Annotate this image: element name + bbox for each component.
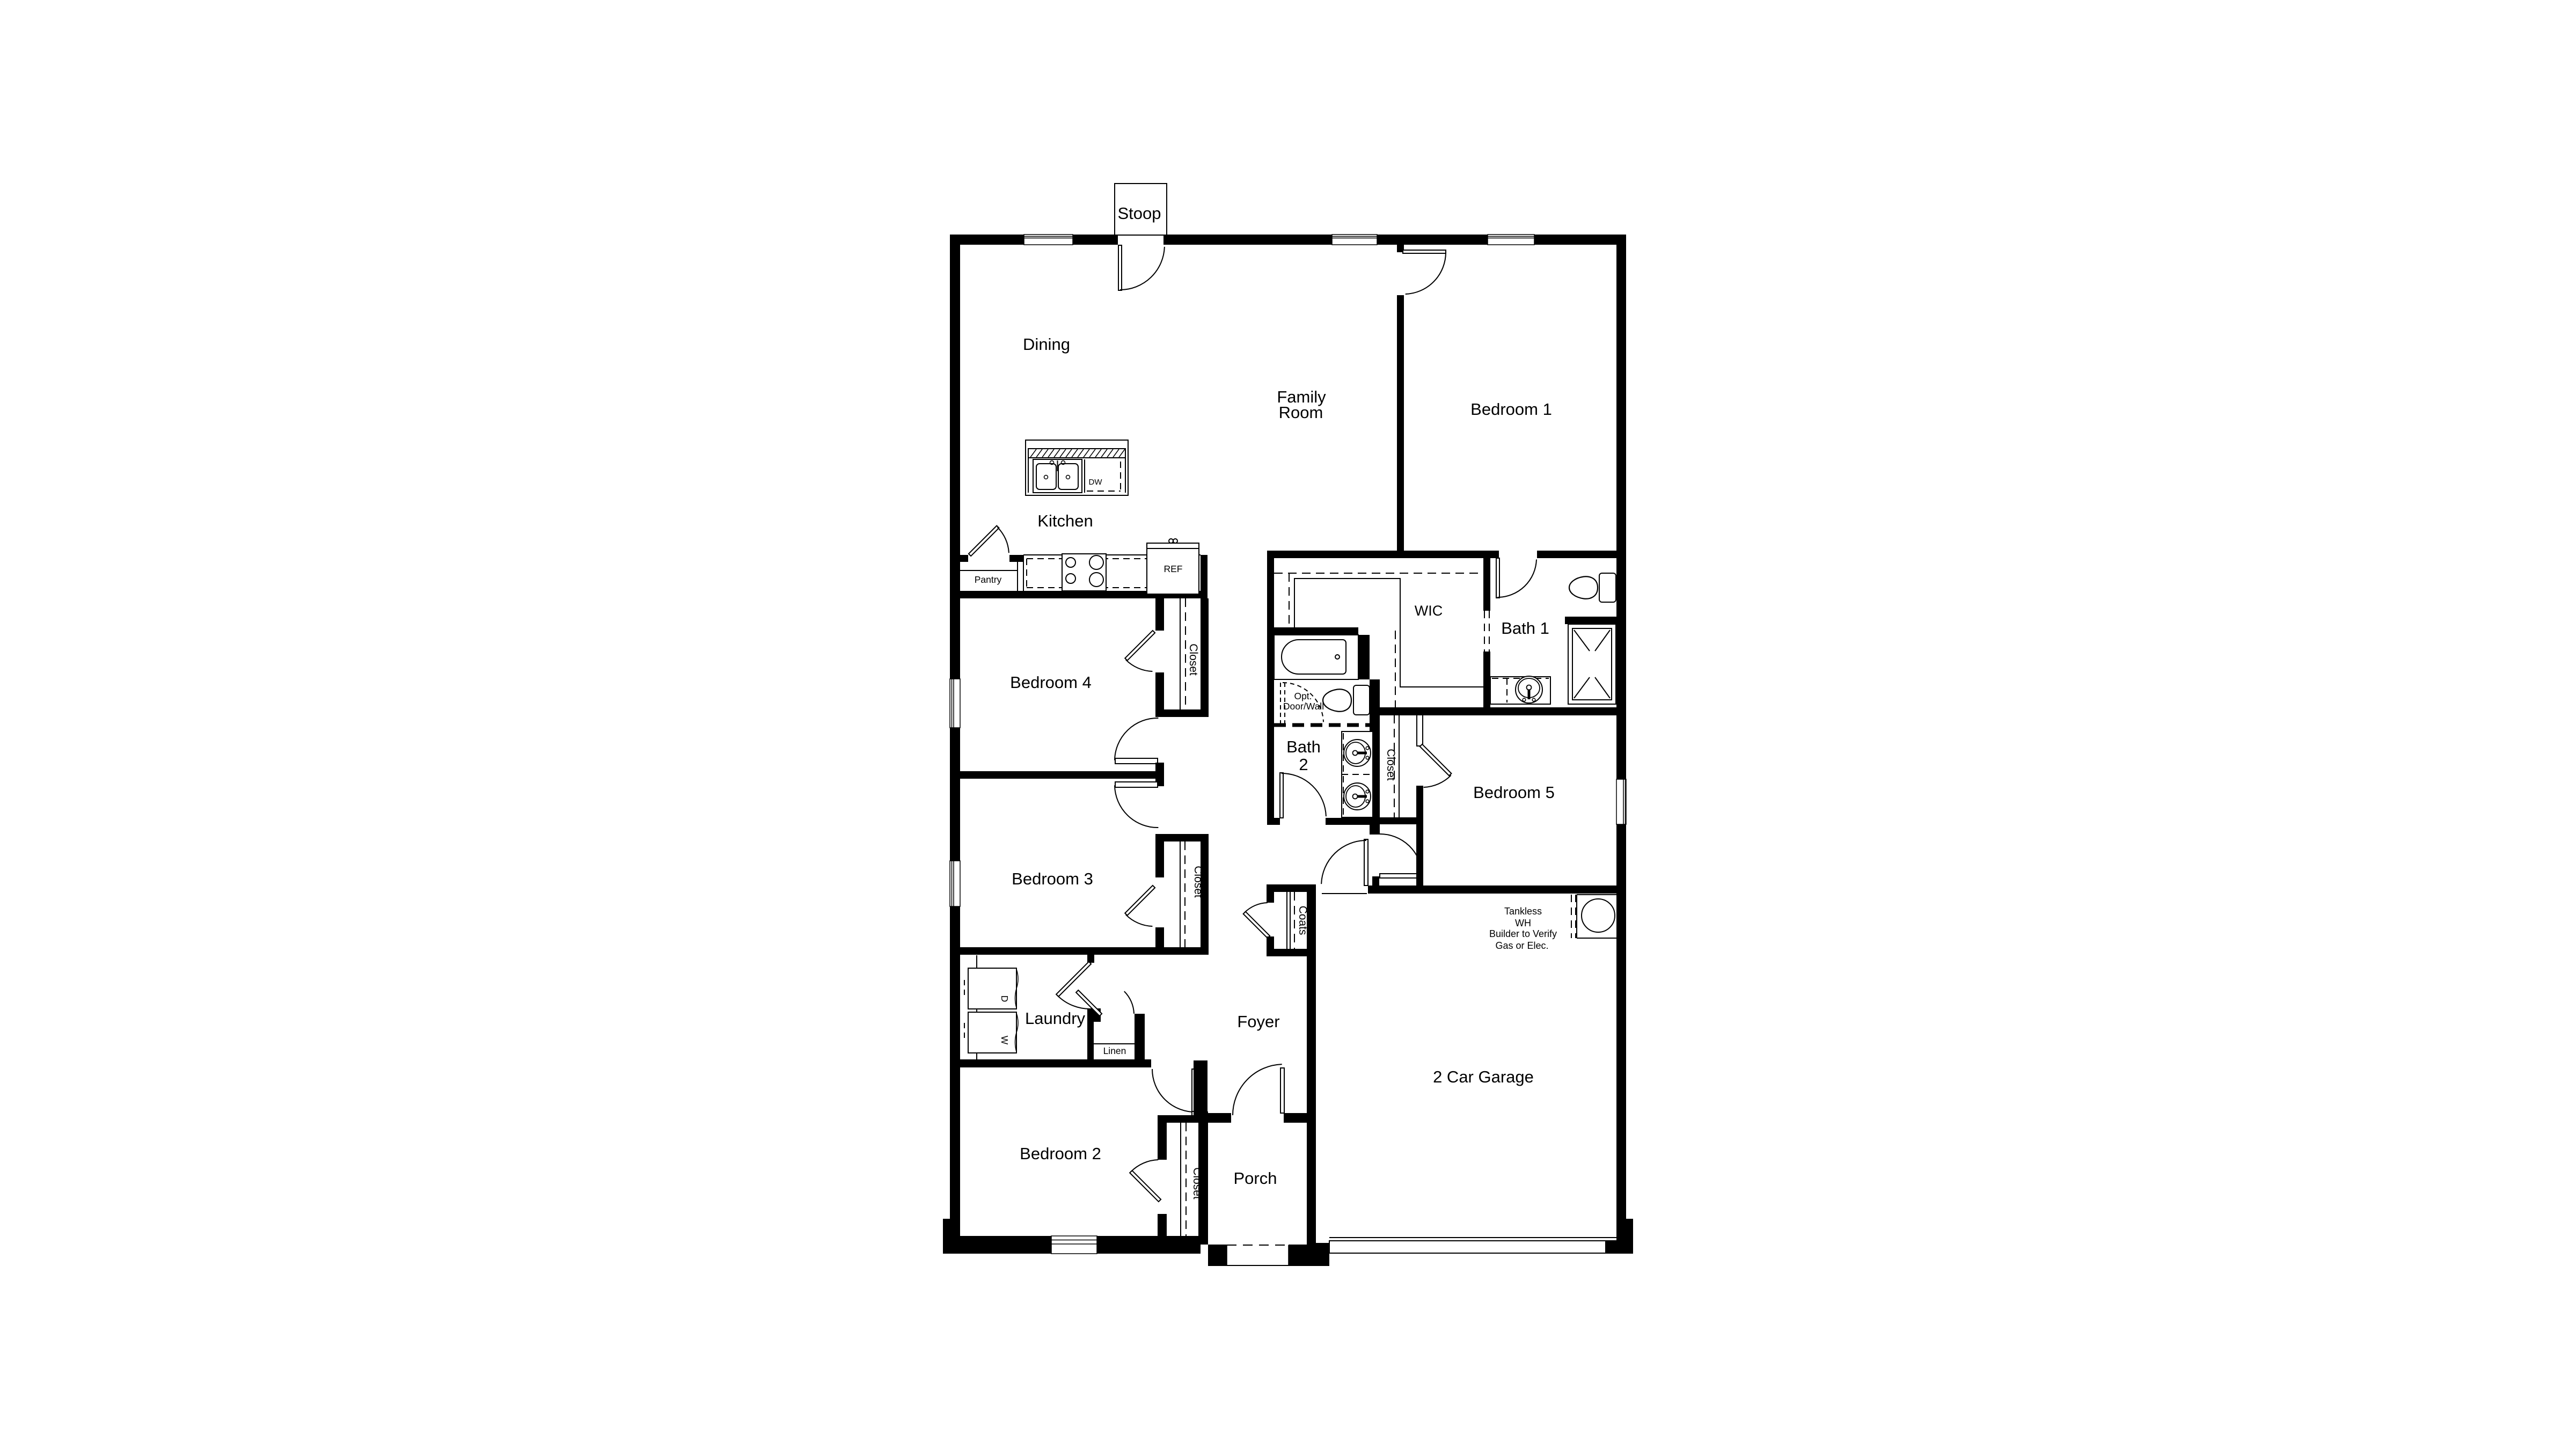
svg-text:Closet: Closet bbox=[1385, 749, 1397, 781]
svg-text:Door/Wall: Door/Wall bbox=[1283, 701, 1324, 712]
svg-text:W: W bbox=[999, 1036, 1010, 1045]
svg-text:2: 2 bbox=[1299, 755, 1308, 774]
svg-text:Tankless: Tankless bbox=[1504, 906, 1542, 917]
svg-text:Bedroom 1: Bedroom 1 bbox=[1470, 400, 1552, 419]
svg-text:Bath: Bath bbox=[1286, 737, 1321, 756]
svg-text:Coats: Coats bbox=[1297, 906, 1309, 935]
svg-text:Stoop: Stoop bbox=[1117, 204, 1161, 223]
svg-text:REF: REF bbox=[1164, 563, 1183, 574]
svg-text:Room: Room bbox=[1279, 403, 1323, 422]
svg-text:D: D bbox=[999, 996, 1010, 1002]
svg-text:Closet: Closet bbox=[1192, 866, 1204, 898]
svg-text:Gas or Elec.: Gas or Elec. bbox=[1495, 940, 1548, 951]
svg-text:Linen: Linen bbox=[1103, 1045, 1126, 1056]
svg-text:Porch: Porch bbox=[1234, 1169, 1277, 1188]
svg-text:Closet: Closet bbox=[1187, 643, 1199, 676]
svg-text:Dining: Dining bbox=[1023, 335, 1070, 354]
svg-text:Bedroom 3: Bedroom 3 bbox=[1012, 869, 1093, 888]
svg-text:DW: DW bbox=[1089, 478, 1103, 487]
svg-text:Builder to Verify: Builder to Verify bbox=[1489, 928, 1557, 939]
svg-text:Bedroom 4: Bedroom 4 bbox=[1010, 673, 1092, 692]
svg-text:Kitchen: Kitchen bbox=[1037, 511, 1093, 530]
svg-text:Pantry: Pantry bbox=[975, 574, 1002, 585]
svg-text:Bedroom 2: Bedroom 2 bbox=[1020, 1144, 1101, 1163]
svg-text:Closet: Closet bbox=[1191, 1167, 1203, 1199]
svg-text:Laundry: Laundry bbox=[1025, 1009, 1086, 1028]
svg-text:Opt.: Opt. bbox=[1294, 691, 1312, 701]
svg-text:WIC: WIC bbox=[1415, 603, 1443, 619]
svg-text:Bath 1: Bath 1 bbox=[1501, 619, 1549, 638]
svg-text:2 Car Garage: 2 Car Garage bbox=[1433, 1067, 1534, 1086]
svg-text:Foyer: Foyer bbox=[1237, 1012, 1279, 1031]
svg-text:Bedroom 5: Bedroom 5 bbox=[1473, 783, 1555, 802]
svg-text:WH: WH bbox=[1515, 918, 1531, 928]
